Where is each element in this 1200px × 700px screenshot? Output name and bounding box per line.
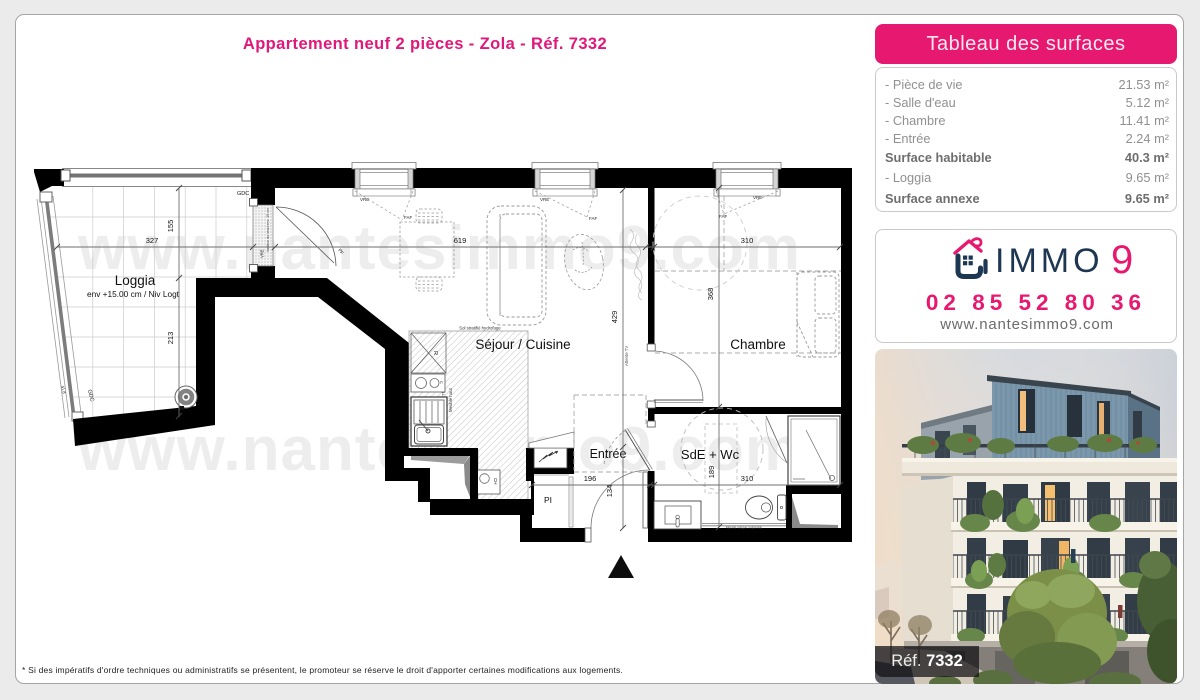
svg-text:9: 9 bbox=[1111, 238, 1133, 282]
svg-text:Attente TV: Attente TV bbox=[624, 346, 629, 366]
svg-text:FAF: FAF bbox=[589, 216, 598, 221]
svg-text:310: 310 bbox=[741, 236, 754, 245]
svg-text:GDC: GDC bbox=[237, 191, 249, 197]
svg-text:PI: PI bbox=[544, 495, 552, 505]
svg-text:213: 213 bbox=[166, 332, 175, 345]
svg-text:429: 429 bbox=[610, 311, 619, 324]
svg-text:VRE: VRE bbox=[753, 195, 762, 200]
svg-text:Chambre: Chambre bbox=[730, 337, 786, 352]
svg-text:CH: CH bbox=[493, 478, 498, 485]
svg-text:196: 196 bbox=[584, 474, 597, 483]
svg-text:189: 189 bbox=[707, 466, 716, 479]
svg-text:C: C bbox=[439, 381, 444, 384]
svg-text:Sol stratifié hydrofuge: Sol stratifié hydrofuge bbox=[459, 326, 501, 331]
svg-text:VRE: VRE bbox=[540, 197, 549, 202]
svg-text:619: 619 bbox=[454, 236, 467, 245]
svg-text:368: 368 bbox=[706, 288, 715, 301]
svg-text:R: R bbox=[432, 351, 438, 355]
svg-text:Séjour / Cuisine: Séjour / Cuisine bbox=[475, 337, 570, 352]
svg-text:hauteur du seuil env. 15 cm: hauteur du seuil env. 15 cm bbox=[266, 208, 270, 252]
svg-text:VRE: VRE bbox=[260, 249, 265, 258]
svg-text:env +15.00 cm / Niv Logt: env +15.00 cm / Niv Logt bbox=[87, 289, 180, 299]
svg-text:155: 155 bbox=[166, 220, 175, 233]
svg-text:Loggia: Loggia bbox=[115, 273, 156, 288]
svg-text:310: 310 bbox=[741, 474, 754, 483]
svg-text:FAF: FAF bbox=[719, 214, 728, 219]
svg-text:IMMO: IMMO bbox=[995, 242, 1104, 280]
svg-text:Meuble haut: Meuble haut bbox=[448, 388, 453, 412]
svg-text:VRE: VRE bbox=[360, 197, 369, 202]
svg-text:SdE + Wc: SdE + Wc bbox=[681, 447, 740, 462]
svg-text:327: 327 bbox=[146, 236, 159, 245]
svg-text:FAF: FAF bbox=[404, 215, 413, 220]
svg-text:134: 134 bbox=[605, 485, 614, 498]
svg-text:GDC: GDC bbox=[86, 389, 95, 402]
svg-text:www.nantesimmo9.com: www.nantesimmo9.com bbox=[77, 214, 801, 283]
svg-text:Meuble vasque suspendu: Meuble vasque suspendu bbox=[726, 526, 763, 530]
